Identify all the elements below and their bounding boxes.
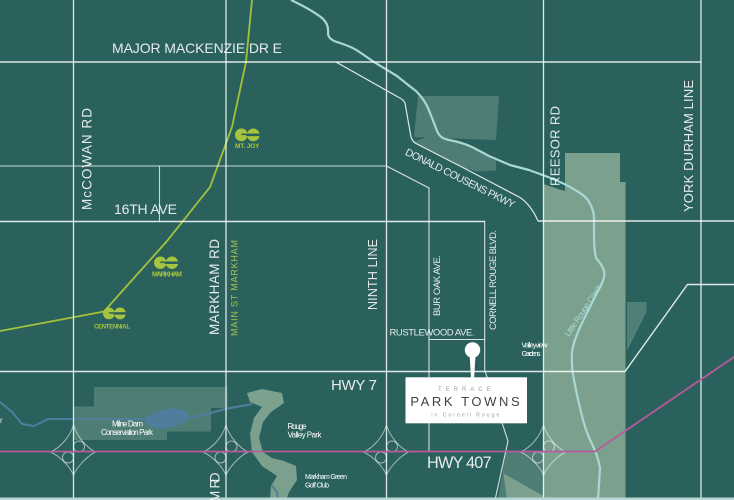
svg-text:MAJOR MACKENZIE DR E: MAJOR MACKENZIE DR E xyxy=(112,40,282,56)
svg-text:MARKHAM: MARKHAM xyxy=(152,272,182,279)
svg-text:Gardens: Gardens xyxy=(522,349,541,358)
svg-text:Valley Park: Valley Park xyxy=(288,431,323,440)
svg-text:BUR OAK AVE.: BUR OAK AVE. xyxy=(432,255,443,316)
svg-text:Golf Club: Golf Club xyxy=(305,483,329,490)
svg-text:Markham Green: Markham Green xyxy=(305,474,347,481)
svg-text:MAIN ST MARKHAM: MAIN ST MARKHAM xyxy=(230,240,240,336)
svg-text:TERRACE: TERRACE xyxy=(438,387,495,393)
svg-text:M: M xyxy=(208,491,223,500)
svg-text:McCOWAN RD: McCOWAN RD xyxy=(80,108,95,210)
svg-text:HWY 7: HWY 7 xyxy=(331,377,377,394)
svg-text:Conservation Park: Conservation Park xyxy=(101,428,154,437)
svg-text:MARKHAM RD: MARKHAM RD xyxy=(207,239,222,335)
svg-text:REESOR RD: REESOR RD xyxy=(548,106,563,186)
svg-text:YORK DURHAM LINE: YORK DURHAM LINE xyxy=(681,80,696,212)
svg-text:PARK TOWNS: PARK TOWNS xyxy=(410,394,522,409)
svg-text:in Cornell Rouge: in Cornell Rouge xyxy=(431,413,501,419)
svg-text:HWY 407: HWY 407 xyxy=(427,454,492,472)
svg-text:16TH AVE: 16TH AVE xyxy=(114,201,177,217)
svg-text:NINTH LINE: NINTH LINE xyxy=(366,239,380,310)
svg-text:RUSTLEWOOD AVE.: RUSTLEWOOD AVE. xyxy=(390,328,475,339)
svg-text:r: r xyxy=(0,416,3,425)
svg-text:CORNELL ROUGE BLVD.: CORNELL ROUGE BLVD. xyxy=(488,230,499,330)
svg-text:RD: RD xyxy=(208,472,223,488)
svg-text:MT. JOY: MT. JOY xyxy=(235,143,260,150)
svg-text:CENTENNIAL: CENTENNIAL xyxy=(94,325,130,331)
